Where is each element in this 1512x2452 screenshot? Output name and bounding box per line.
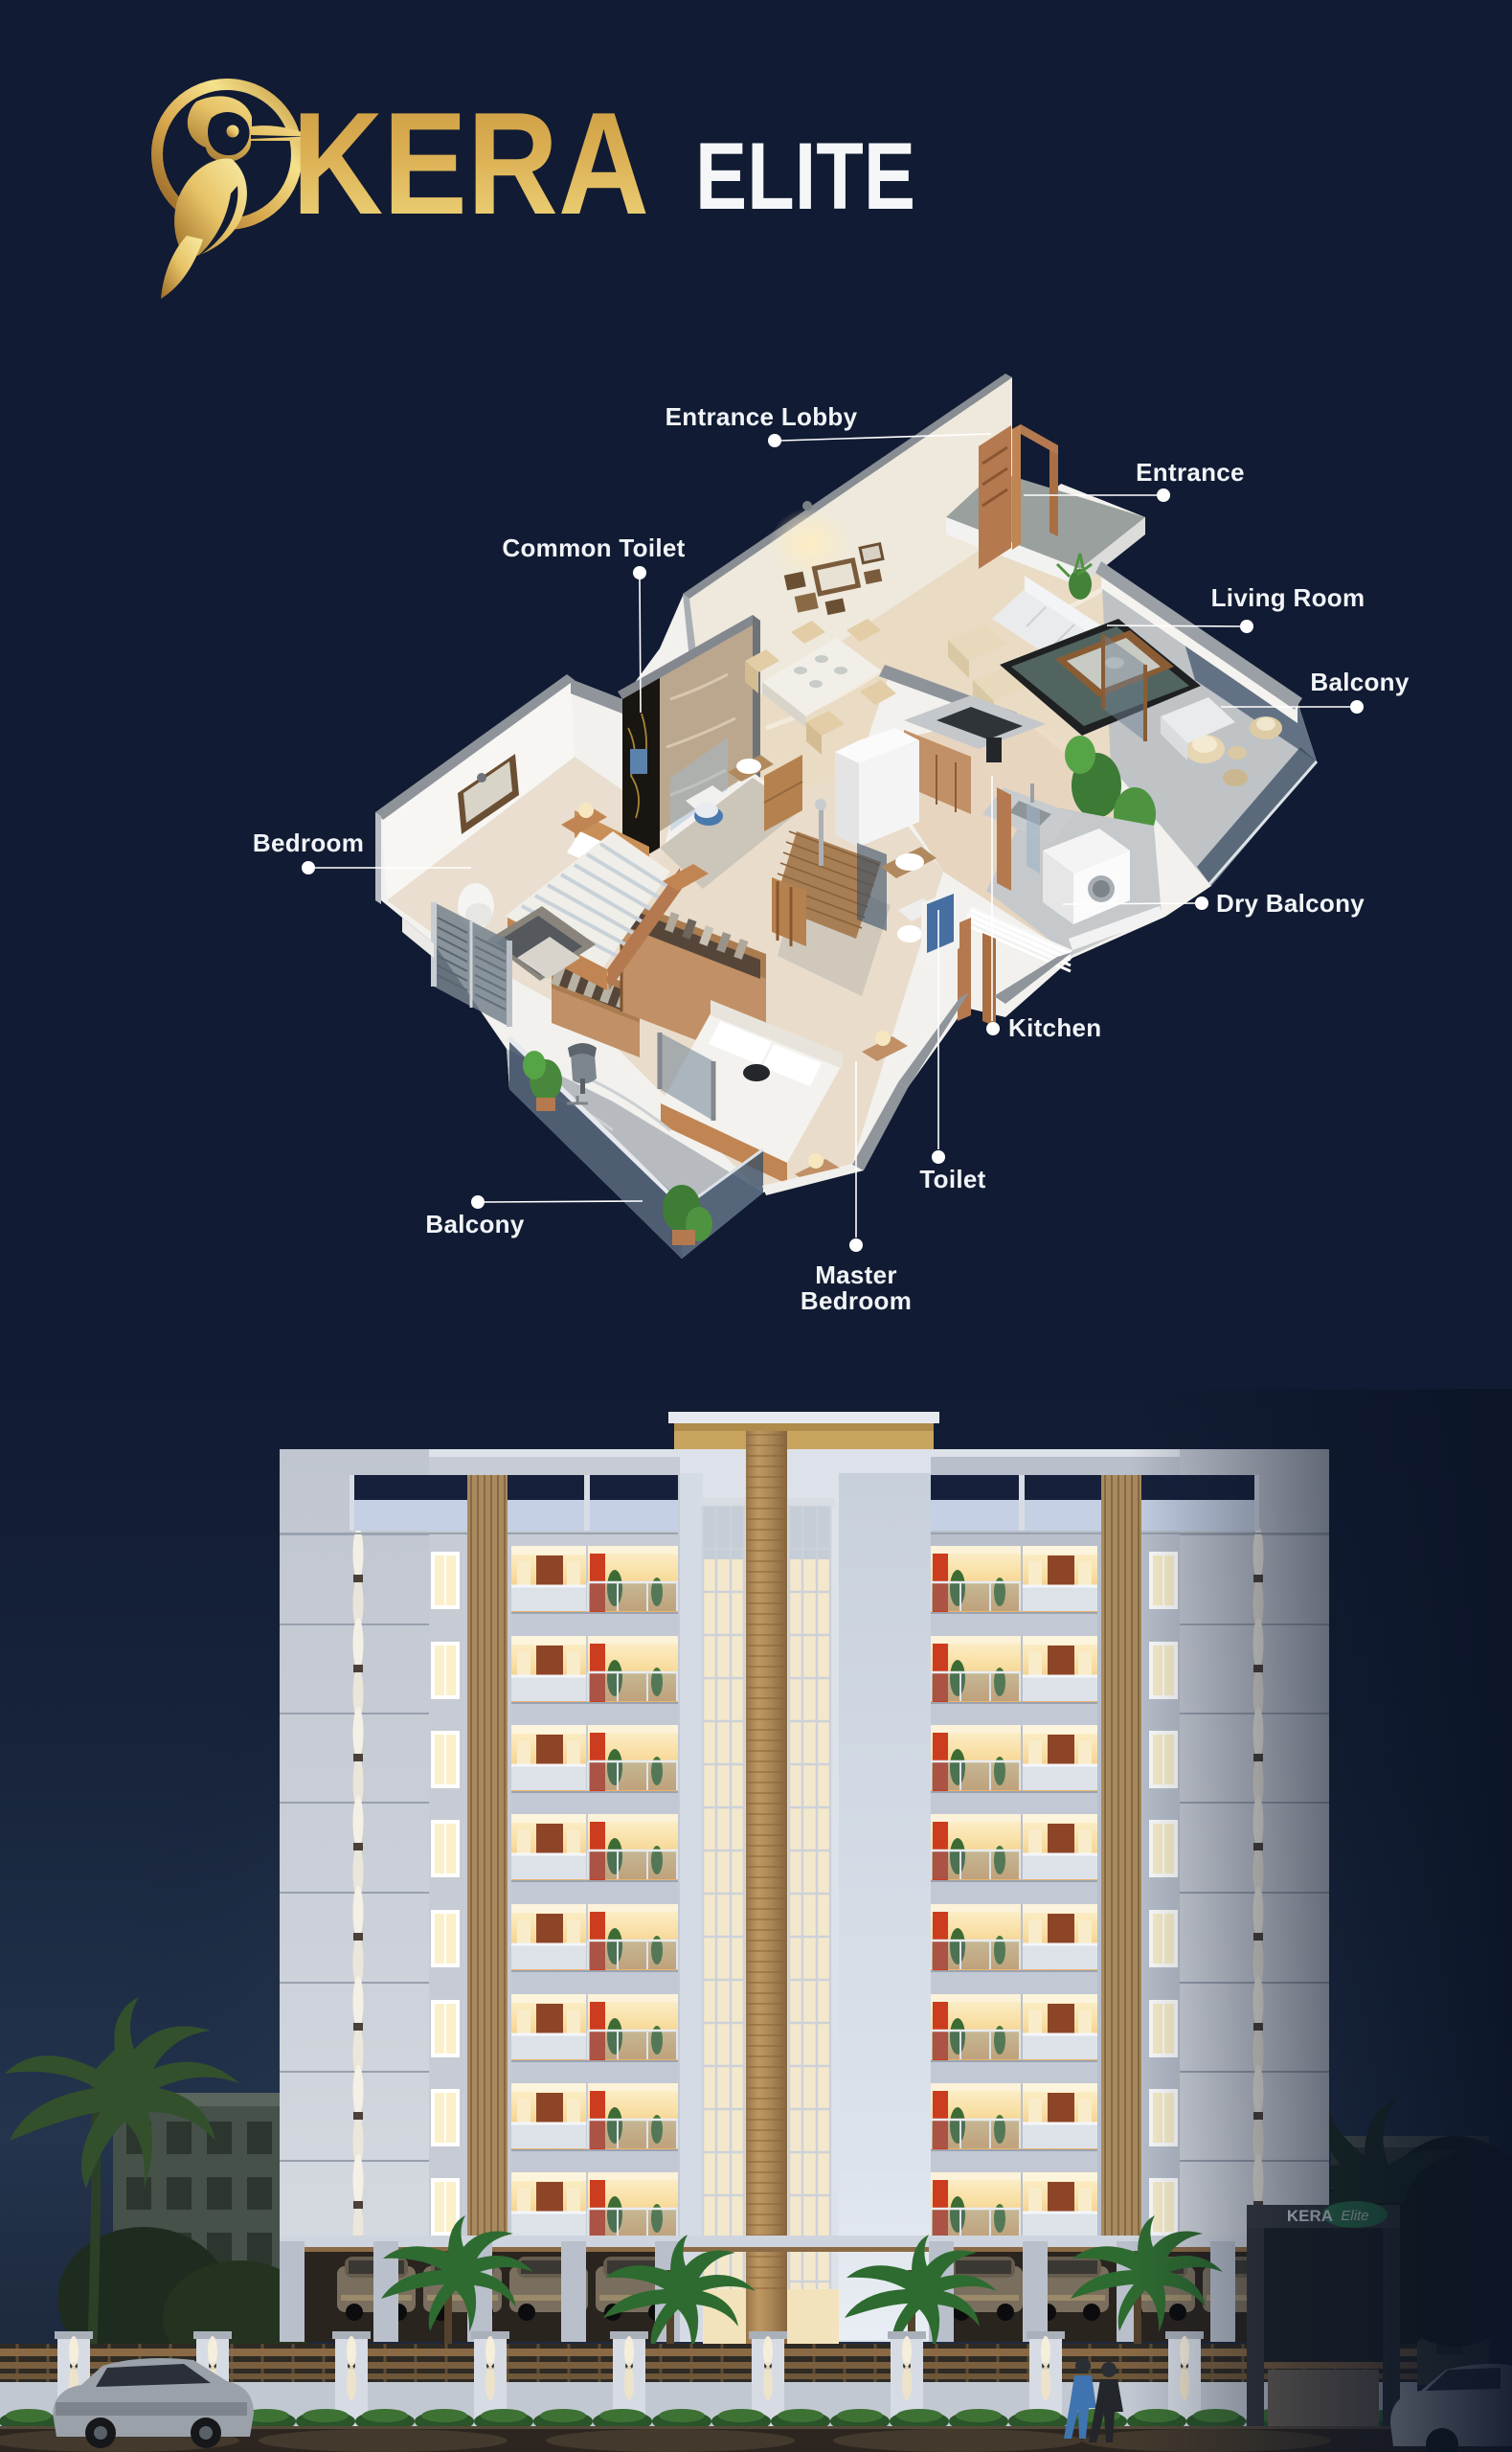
svg-text:ELITE: ELITE bbox=[695, 123, 915, 229]
svg-text:Balcony: Balcony bbox=[1310, 668, 1409, 696]
svg-text:KERA: KERA bbox=[292, 82, 649, 245]
svg-text:Entrance: Entrance bbox=[1136, 458, 1245, 487]
svg-text:Master: Master bbox=[815, 1260, 897, 1289]
svg-text:Bedroom: Bedroom bbox=[253, 829, 364, 857]
svg-text:Common Toilet: Common Toilet bbox=[502, 534, 685, 562]
svg-text:Entrance Lobby: Entrance Lobby bbox=[666, 402, 858, 431]
svg-text:Living Room: Living Room bbox=[1211, 583, 1365, 612]
svg-text:Balcony: Balcony bbox=[425, 1210, 524, 1238]
svg-text:Kitchen: Kitchen bbox=[1008, 1013, 1101, 1042]
svg-text:Dry Balcony: Dry Balcony bbox=[1216, 889, 1365, 918]
svg-text:Bedroom: Bedroom bbox=[801, 1286, 912, 1315]
svg-text:Toilet: Toilet bbox=[919, 1165, 985, 1193]
